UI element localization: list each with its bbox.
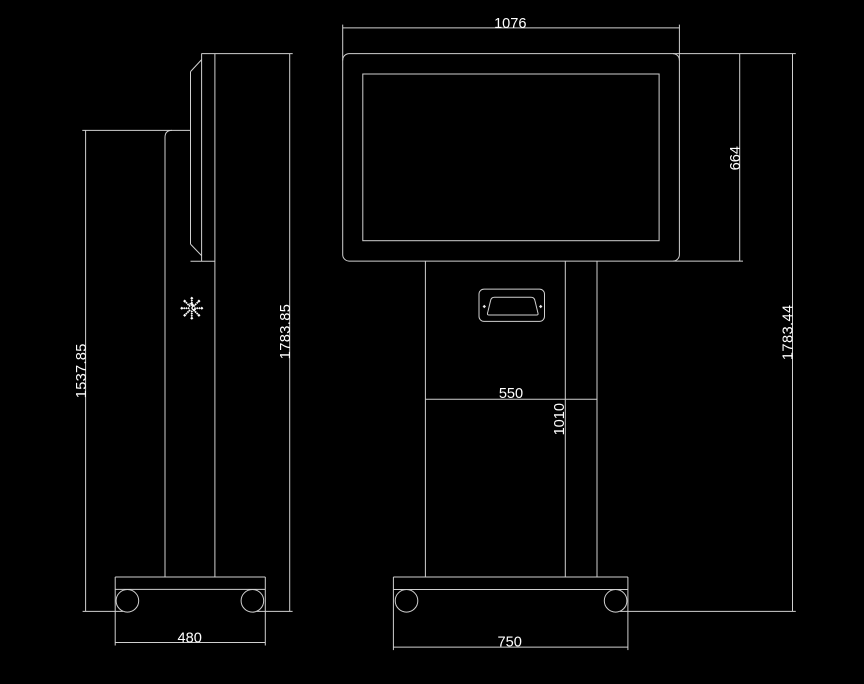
svg-text:1076: 1076 xyxy=(494,16,526,32)
svg-text:664: 664 xyxy=(728,146,744,170)
svg-text:750: 750 xyxy=(498,635,522,651)
svg-text:480: 480 xyxy=(178,630,202,646)
svg-text:1537.85: 1537.85 xyxy=(74,343,90,398)
svg-text:1783.44: 1783.44 xyxy=(781,305,797,361)
svg-text:1010: 1010 xyxy=(552,403,568,435)
svg-text:550: 550 xyxy=(499,386,523,402)
svg-text:1783.85: 1783.85 xyxy=(278,304,294,360)
